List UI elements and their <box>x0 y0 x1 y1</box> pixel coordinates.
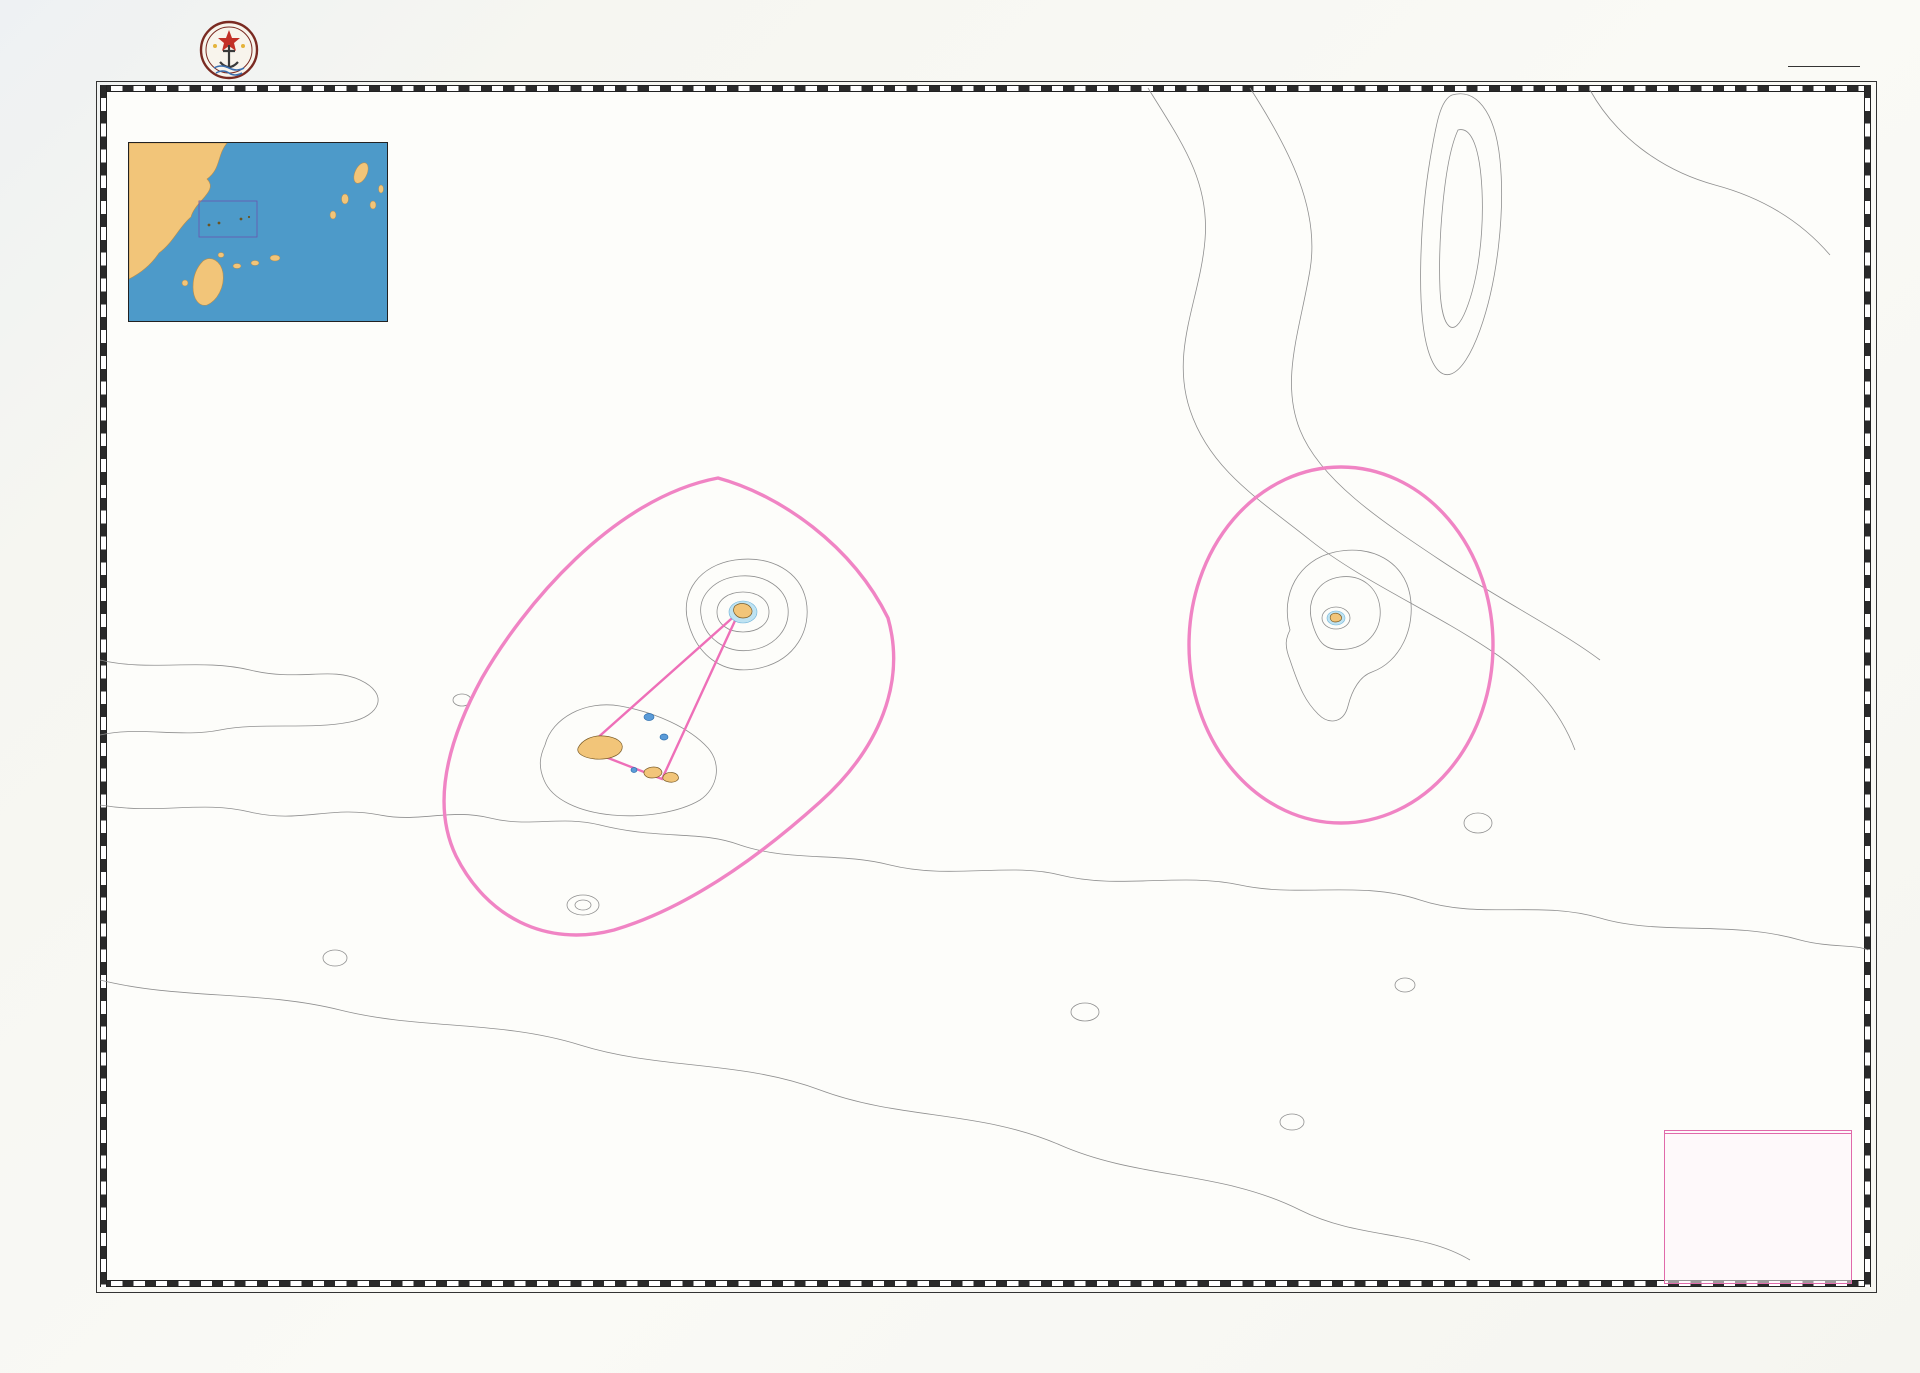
nan-xiaodao-island <box>644 767 662 778</box>
bei-yu-islet <box>644 714 654 721</box>
islands <box>578 601 1345 782</box>
huangwei-yu-island <box>734 604 752 618</box>
diaoyu-territorial-sea-loop <box>444 478 894 935</box>
chiwei-territorial-sea-loop <box>1189 467 1493 823</box>
bei-xiaodao-island <box>663 772 679 782</box>
basepoint-table-grid <box>1665 1133 1851 1134</box>
chiwei-yu-island <box>1330 613 1341 622</box>
chart-page <box>0 0 1920 1373</box>
fei-yu-islet <box>631 768 637 773</box>
inset-location-map <box>128 142 388 322</box>
basepoint-table <box>1664 1130 1852 1284</box>
nan-yu-islet <box>660 734 668 740</box>
territorial-sea-lines <box>444 467 1493 935</box>
diaoyu-dao-island <box>578 736 623 759</box>
